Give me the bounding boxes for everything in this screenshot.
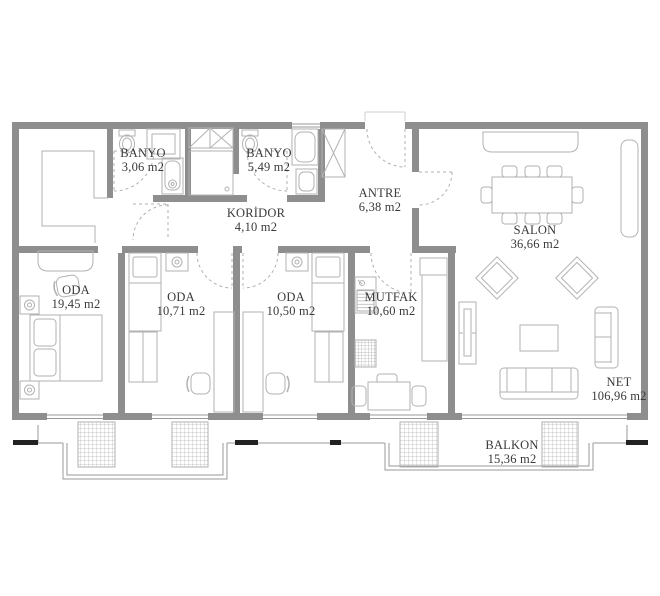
coffee-table [520, 325, 558, 351]
tv-unit [459, 302, 476, 364]
dressing-room-counter [42, 151, 108, 243]
room-label-antre: ANTRE 6,38 m2 [359, 186, 402, 214]
laundry-sink-icon [189, 128, 210, 148]
room-label-koridor: KORİDOR 4,10 m2 [227, 206, 285, 234]
walls [12, 122, 648, 420]
room-label-mutfak: MUTFAK 10,60 m2 [364, 290, 417, 318]
washbasin-icon [296, 169, 317, 194]
desk [38, 251, 93, 271]
tall-cabinet [621, 140, 638, 237]
room-label-banyo-1: BANYO 3,06 m2 [120, 146, 165, 174]
loveseat [595, 307, 618, 368]
room-label-banyo-2: BANYO 5,49 m2 [246, 146, 291, 174]
desk [214, 312, 234, 412]
closet-icon [322, 129, 345, 177]
kitchen-table-set [352, 374, 426, 410]
balcony [13, 422, 648, 479]
room-label-oda-3: ODA 10,50 m2 [267, 290, 316, 318]
room-label-oda-1: ODA 19,45 m2 [52, 283, 101, 311]
room-label-balkon: BALKON 15,36 m2 [485, 438, 538, 466]
room-label-oda-2: ODA 10,71 m2 [157, 290, 206, 318]
wardrobe [129, 332, 157, 382]
armchair-diamond [556, 257, 598, 299]
entrance-landing [365, 112, 405, 121]
armchair-diamond [476, 257, 518, 299]
stove-icon [355, 340, 376, 367]
dining-table [492, 177, 572, 213]
net-area-label: NET 106,96 m2 [591, 375, 646, 403]
sideboard [483, 132, 578, 152]
nightstand-lamp [20, 381, 39, 399]
wardrobe [315, 332, 343, 382]
nightstand-lamp [166, 253, 188, 271]
floor-plan: BANYO 3,06 m2 BANYO 5,49 m2 KORİDOR 4,10… [0, 0, 660, 596]
double-bed [30, 315, 102, 381]
cabinet-x-icon [210, 128, 233, 148]
sofa [500, 368, 578, 399]
single-bed [312, 253, 344, 331]
bathtub-icon [292, 129, 318, 165]
shower-cabin-icon [189, 151, 233, 195]
desk [243, 312, 263, 412]
desk-chair [187, 373, 210, 394]
dining-chairs [481, 166, 583, 224]
room-label-salon: SALON 36,66 m2 [511, 223, 560, 251]
nightstand-lamp [286, 253, 308, 271]
kitchen-counter [420, 258, 447, 361]
desk-chair [266, 373, 289, 394]
nightstand-lamp [20, 296, 39, 314]
